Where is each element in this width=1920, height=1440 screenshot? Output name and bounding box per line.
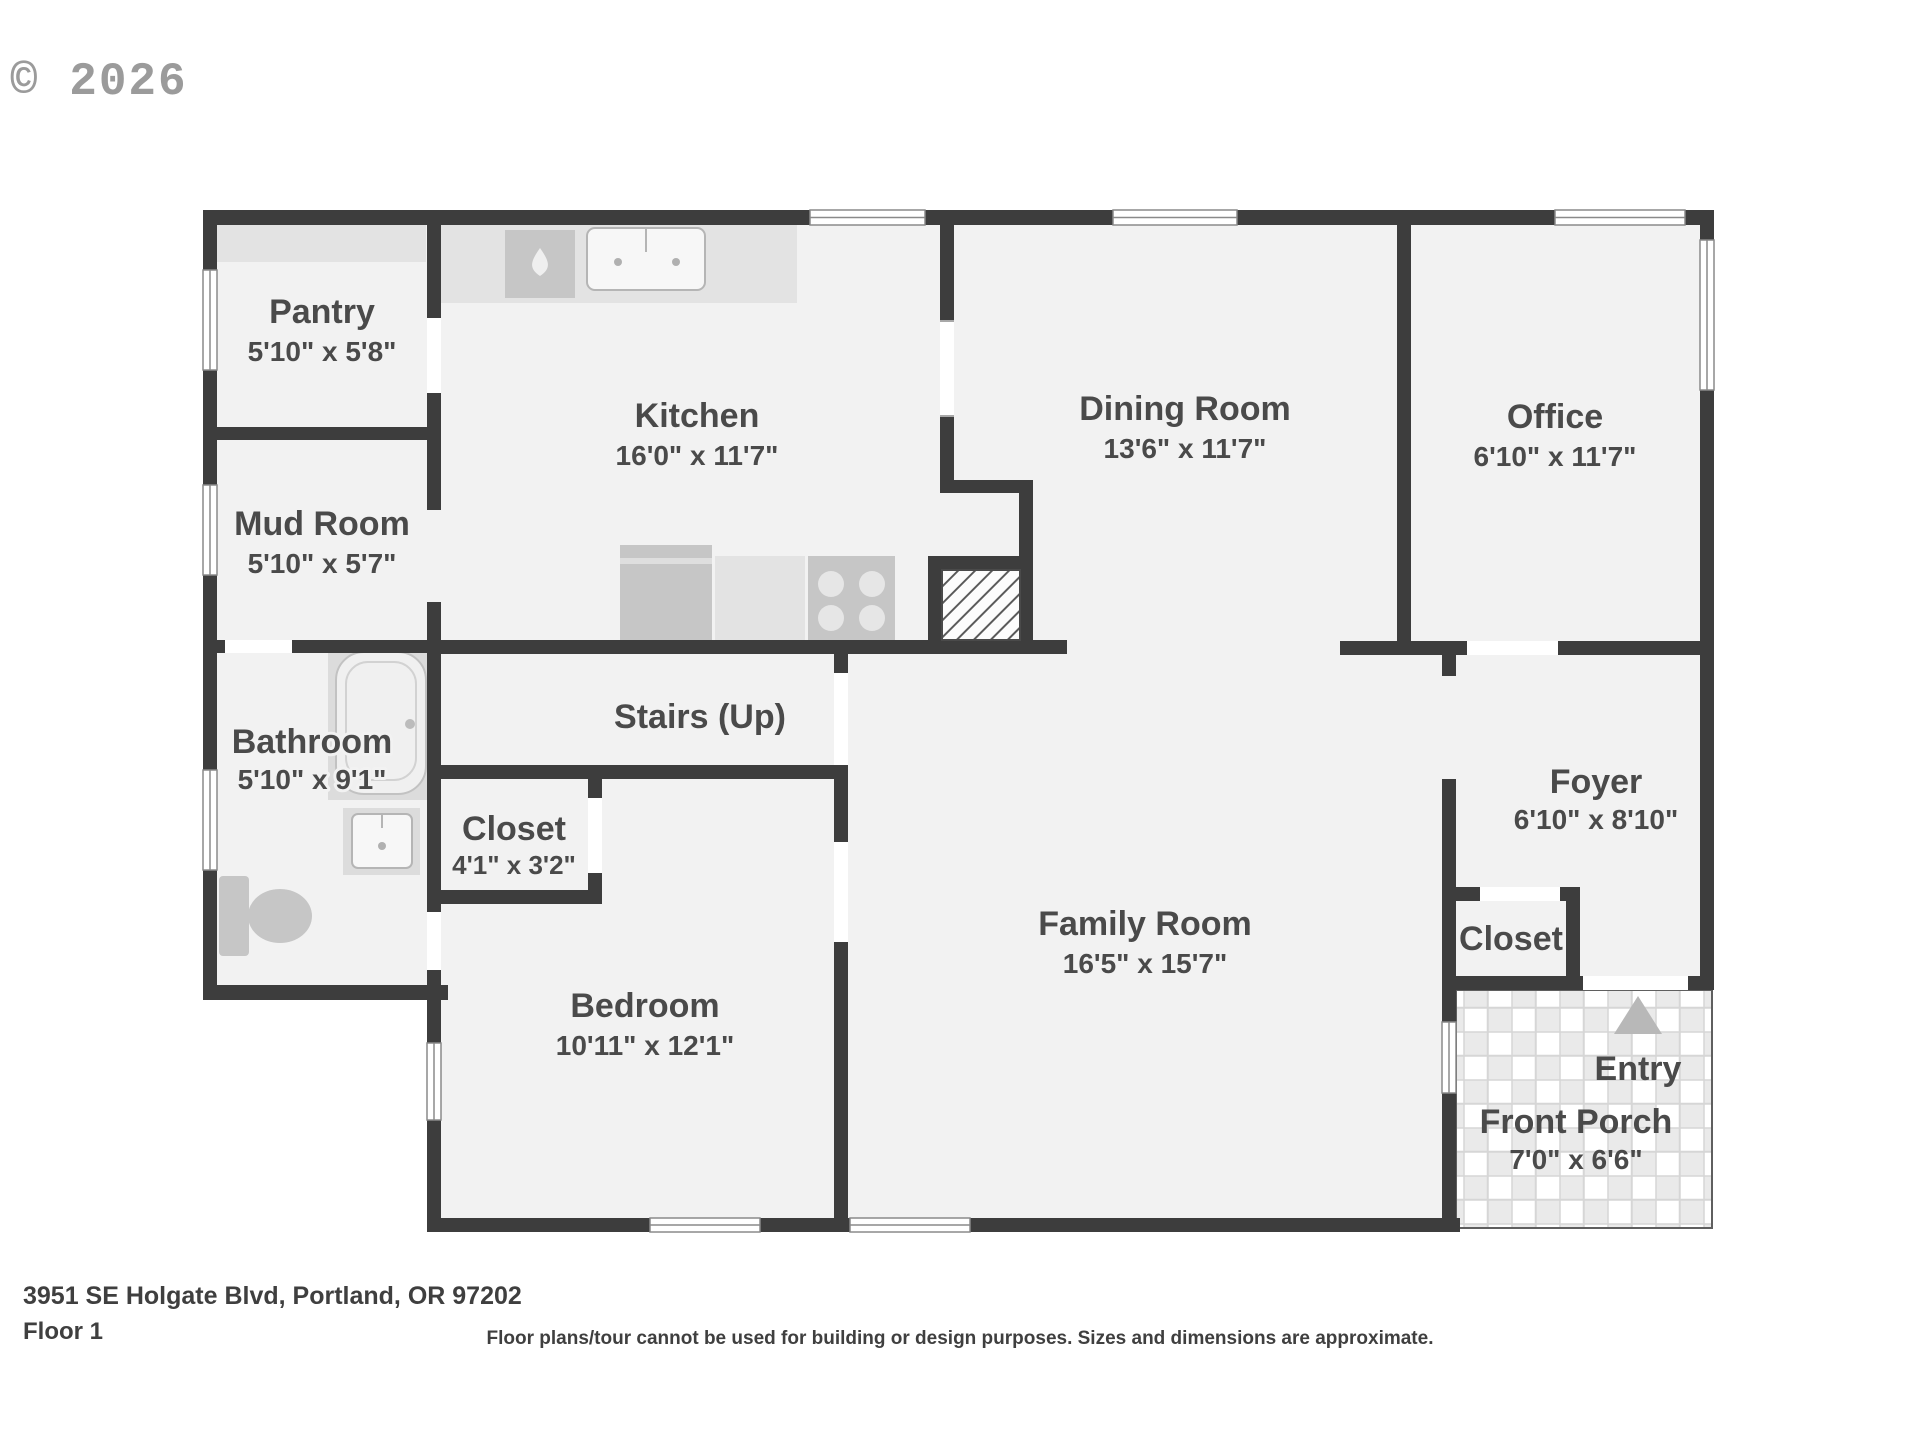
room-dims-bathroom: 5'10" x 9'1" [238, 764, 387, 795]
room-closet-hall: Closet 4'1" x 3'2" [452, 810, 576, 880]
door-opening [588, 798, 602, 873]
room-dims-office: 6'10" x 11'7" [1474, 441, 1637, 472]
window [650, 1218, 760, 1232]
window [203, 270, 217, 370]
toilet-tank [219, 876, 249, 956]
stove [808, 556, 895, 640]
window [1113, 210, 1237, 225]
room-closet-foyer: Closet [1459, 920, 1563, 958]
window [1555, 210, 1685, 225]
floor-plan-page: © 2026 [0, 0, 1920, 1440]
room-bathroom: Bathroom 5'10" x 9'1" [232, 723, 393, 795]
room-dims-closet-hall: 4'1" x 3'2" [452, 850, 576, 880]
window [203, 485, 217, 575]
disclaimer-text: Floor plans/tour cannot be used for buil… [0, 1328, 1920, 1350]
burner-icon [859, 605, 885, 631]
room-label-pantry: Pantry [269, 293, 375, 331]
window [427, 1043, 441, 1120]
cased-opening [940, 320, 954, 417]
room-label-closet-hall: Closet [462, 810, 566, 848]
entry-door-opening [1583, 976, 1688, 990]
refrigerator-handle [620, 558, 712, 564]
room-label-bedroom: Bedroom [570, 987, 719, 1025]
door-opening [834, 673, 848, 765]
door-opening [225, 640, 292, 653]
door-opening [427, 510, 441, 602]
kitchen-counter-bottom [715, 556, 805, 640]
room-label-stairs: Stairs (Up) [614, 698, 786, 736]
door-opening [834, 842, 848, 942]
kitchen-sink-knob-right [672, 258, 680, 266]
kitchen-sink-knob-left [614, 258, 622, 266]
window [850, 1218, 970, 1232]
room-label-entry: Entry [1595, 1050, 1682, 1088]
window [203, 770, 217, 870]
room-stairs: Stairs (Up) [614, 698, 786, 736]
window [810, 210, 925, 225]
bath-sink-drain [378, 842, 386, 850]
door-opening [427, 318, 441, 393]
room-dims-pantry: 5'10" x 5'8" [248, 336, 397, 367]
room-label-mudroom: Mud Room [234, 505, 410, 543]
room-dims-mudroom: 5'10" x 5'7" [248, 548, 397, 579]
room-dims-porch: 7'0" x 6'6" [1509, 1144, 1642, 1175]
burner-icon [818, 605, 844, 631]
property-address: 3951 SE Holgate Blvd, Portland, OR 97202 [23, 1282, 522, 1311]
room-dims-bedroom: 10'11" x 12'1" [556, 1030, 734, 1061]
window [1700, 240, 1714, 390]
room-label-closet-foyer: Closet [1459, 920, 1563, 958]
bathtub-drain [405, 719, 415, 729]
room-dims-foyer: 6'10" x 8'10" [1514, 804, 1678, 835]
toilet-bowl [248, 889, 312, 943]
room-label-foyer: Foyer [1550, 763, 1643, 801]
room-dims-kitchen: 16'0" x 11'7" [616, 440, 779, 471]
room-dims-dining: 13'6" x 11'7" [1104, 433, 1267, 464]
room-dining: Dining Room 13'6" x 11'7" [1079, 390, 1291, 464]
door-opening [1467, 641, 1558, 655]
room-label-bathroom: Bathroom [232, 723, 393, 761]
room-label-office: Office [1507, 398, 1603, 436]
room-dims-family: 16'5" x 15'7" [1063, 948, 1227, 979]
room-family: Family Room 16'5" x 15'7" [1038, 905, 1251, 979]
fireplace [942, 570, 1020, 640]
burner-icon [818, 571, 844, 597]
pantry-shelf [217, 225, 426, 262]
room-bedroom: Bedroom 10'11" x 12'1" [556, 987, 734, 1061]
room-pantry: Pantry 5'10" x 5'8" [248, 293, 397, 367]
room-label-kitchen: Kitchen [635, 397, 760, 435]
room-label-dining: Dining Room [1079, 390, 1291, 428]
door-opening [427, 912, 441, 970]
room-label-porch: Front Porch [1480, 1103, 1673, 1141]
room-kitchen: Kitchen 16'0" x 11'7" [616, 397, 779, 471]
floor-plan-svg: Pantry 5'10" x 5'8" Kitchen 16'0" x 11'7… [0, 0, 1920, 1440]
room-label-family: Family Room [1038, 905, 1251, 943]
burner-icon [859, 571, 885, 597]
door-opening [1480, 887, 1560, 901]
room-mudroom: Mud Room 5'10" x 5'7" [234, 505, 410, 579]
room-entry: Entry [1595, 1050, 1682, 1088]
window [1442, 1022, 1456, 1093]
door-opening [1442, 676, 1456, 779]
